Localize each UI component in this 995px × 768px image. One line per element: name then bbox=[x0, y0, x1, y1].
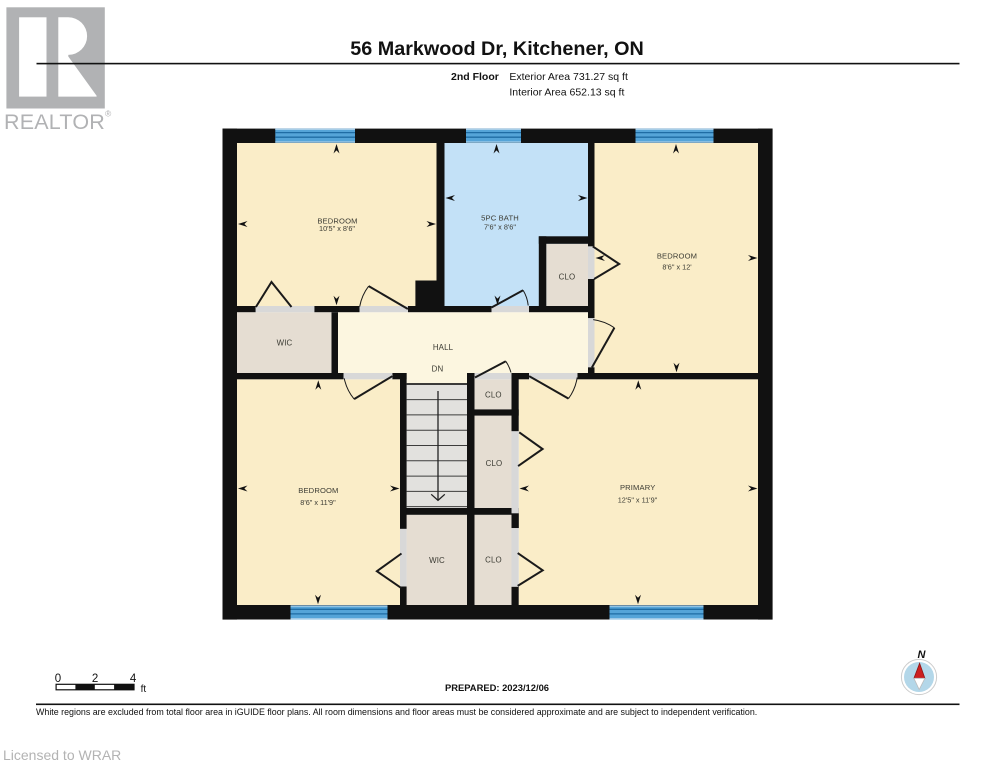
svg-text:4: 4 bbox=[130, 673, 137, 685]
svg-text:CLO: CLO bbox=[485, 391, 502, 400]
svg-text:WIC: WIC bbox=[429, 556, 445, 565]
svg-text:PREPARED: 2023/12/06: PREPARED: 2023/12/06 bbox=[445, 682, 549, 693]
svg-text:7'6" x 8'6": 7'6" x 8'6" bbox=[484, 223, 516, 232]
svg-text:2: 2 bbox=[92, 673, 98, 685]
svg-text:8'6" x 11'9": 8'6" x 11'9" bbox=[300, 498, 336, 507]
svg-text:ft: ft bbox=[141, 684, 147, 695]
svg-text:10'5" x 8'6": 10'5" x 8'6" bbox=[319, 224, 355, 233]
svg-text:8'6" x 12': 8'6" x 12' bbox=[662, 263, 692, 272]
svg-text:®: ® bbox=[105, 109, 112, 119]
svg-text:PRIMARY: PRIMARY bbox=[620, 483, 656, 492]
svg-text:2nd Floor: 2nd Floor bbox=[451, 71, 499, 83]
svg-text:5PC BATH: 5PC BATH bbox=[481, 214, 519, 223]
svg-text:White regions are excluded fro: White regions are excluded from total fl… bbox=[36, 707, 757, 717]
svg-text:Exterior Area 731.27 sq ft: Exterior Area 731.27 sq ft bbox=[509, 71, 628, 83]
svg-text:CLO: CLO bbox=[486, 459, 503, 468]
svg-text:BEDROOM: BEDROOM bbox=[657, 251, 697, 260]
svg-text:REALTOR: REALTOR bbox=[4, 110, 105, 134]
svg-text:Interior Area 652.13 sq ft: Interior Area 652.13 sq ft bbox=[509, 87, 624, 99]
svg-text:DN: DN bbox=[432, 364, 444, 373]
svg-text:CLO: CLO bbox=[559, 273, 576, 282]
svg-text:HALL: HALL bbox=[433, 343, 454, 352]
svg-text:CLO: CLO bbox=[485, 555, 502, 564]
svg-text:BEDROOM: BEDROOM bbox=[298, 486, 338, 495]
svg-text:Licensed to WRAR: Licensed to WRAR bbox=[3, 747, 121, 763]
svg-text:56 Markwood Dr, Kitchener, ON: 56 Markwood Dr, Kitchener, ON bbox=[350, 38, 644, 60]
svg-text:WIC: WIC bbox=[277, 339, 293, 348]
svg-text:0: 0 bbox=[55, 673, 61, 685]
svg-text:12'5" x 11'9": 12'5" x 11'9" bbox=[618, 496, 658, 505]
svg-text:N: N bbox=[918, 649, 927, 661]
